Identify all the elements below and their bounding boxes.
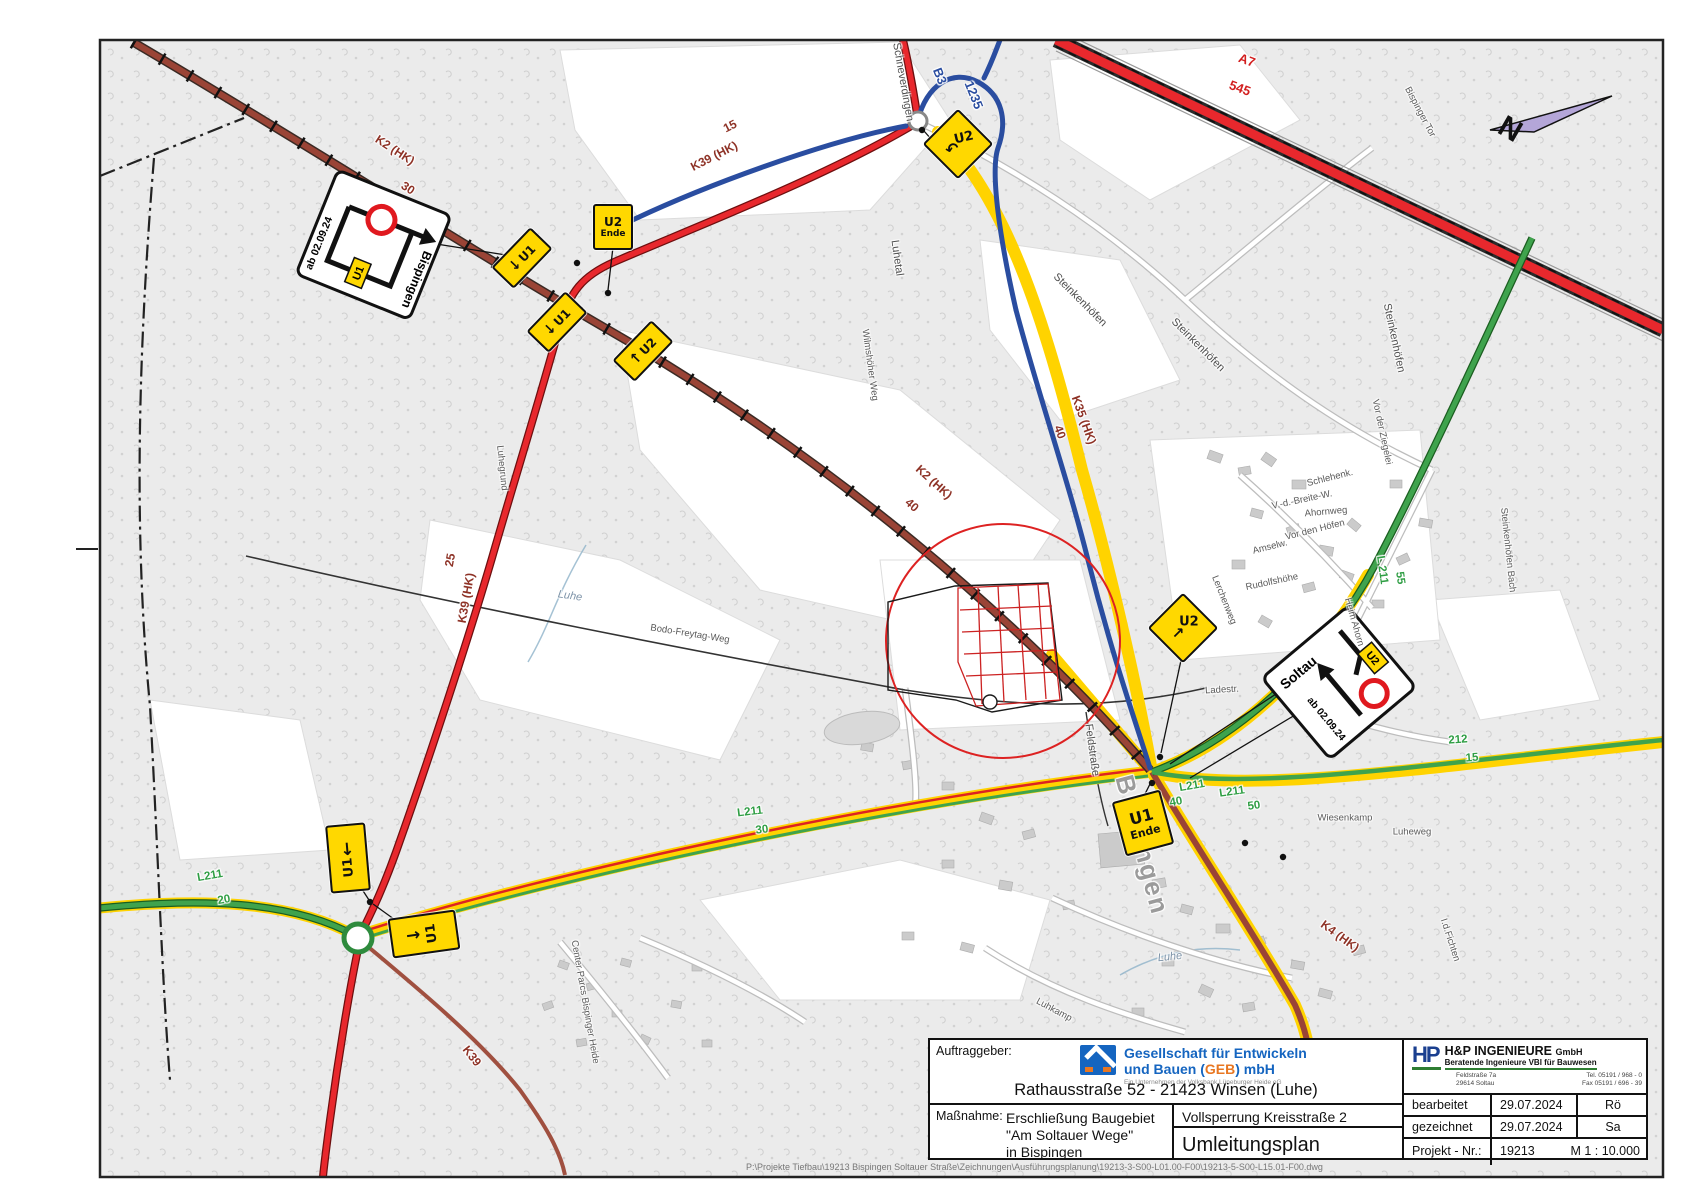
- map-label: 20: [217, 893, 232, 907]
- map-canvas: U1 ab 02.09.24 Bispingen Soltau U2 ab 02…: [0, 0, 1700, 1202]
- scale-value: M 1 : 10.000: [1571, 1144, 1641, 1165]
- closure-title: Vollsperrung Kreisstraße 2: [1174, 1105, 1404, 1128]
- u1-arrow-sign: ↓U1: [325, 822, 371, 893]
- project-row: Projekt - Nr.: 19213 M 1 : 10.000: [1404, 1137, 1648, 1165]
- client-address: Rathausstraße 52 - 21423 Winsen (Luhe): [930, 1081, 1402, 1100]
- map-label: 30: [755, 823, 769, 836]
- map-label: 40: [1169, 795, 1184, 809]
- engineer-cell: HP H&P INGENIEURE GmbH Beratende Ingenie…: [1404, 1040, 1648, 1093]
- map-label: Ladestr.: [1205, 684, 1239, 697]
- measure-text: Erschließung Baugebiet "Am Soltauer Wege…: [1006, 1110, 1155, 1161]
- table-row: bearbeitet 29.07.2024 Rö: [1404, 1093, 1648, 1117]
- engineer-phone: Tel. 05191 / 968 - 0 Fax 05191 / 696 - 3…: [1582, 1072, 1642, 1088]
- measure-cell: Maßnahme: Erschließung Baugebiet "Am Sol…: [930, 1105, 1174, 1160]
- project-number: 19213: [1500, 1144, 1535, 1165]
- client-name-line2: und Bauen (GEB) mbH: [1124, 1061, 1307, 1077]
- u2-ende-sign: U2Ende: [593, 204, 633, 250]
- map-label: 55: [1393, 571, 1407, 585]
- file-path: P:\Projekte Tiefbau\19213 Bispingen Solt…: [746, 1162, 1323, 1172]
- detour-plan-page: U1 ab 02.09.24 Bispingen Soltau U2 ab 02…: [0, 0, 1700, 1202]
- engineer-subline: Beratende Ingenieure VBI für Bauwesen: [1445, 1058, 1597, 1067]
- client-cell: Auftraggeber: Gesellschaft für Entwickel…: [930, 1040, 1404, 1105]
- hp-logo-icon: HP: [1412, 1045, 1441, 1070]
- title-block: Auftraggeber: Gesellschaft für Entwickel…: [928, 1038, 1648, 1160]
- geb-logo-icon: [1080, 1045, 1116, 1075]
- map-label: Wiesenkamp: [1318, 813, 1373, 824]
- map-label: Luhe: [1157, 950, 1183, 964]
- engineer-name: H&P INGENIEURE GmbH: [1445, 1045, 1597, 1058]
- table-row: gezeichnet 29.07.2024 Sa: [1404, 1115, 1648, 1139]
- engineer-address: Feldstraße 7a 29614 Soltau: [1456, 1072, 1496, 1088]
- map-label: Luheweg: [1393, 827, 1432, 838]
- map-content: U1 ab 02.09.24 Bispingen Soltau U2 ab 02…: [100, 29, 1663, 1177]
- client-name-line1: Gesellschaft für Entwickeln: [1124, 1045, 1307, 1061]
- plan-title: Umleitungsplan: [1174, 1128, 1404, 1160]
- map-label: 15: [1465, 752, 1479, 765]
- map-label: 25: [442, 552, 458, 568]
- map-label: 50: [1247, 799, 1261, 813]
- map-label: 212: [1448, 733, 1468, 746]
